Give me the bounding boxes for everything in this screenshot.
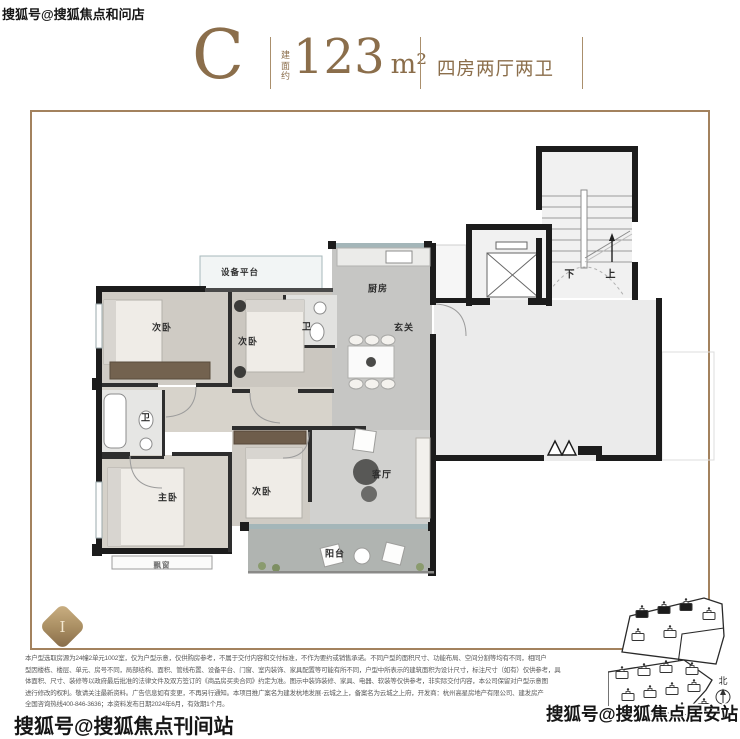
stairwell [542,152,632,298]
watermark-bottom-left: 搜狐号@搜狐焦点刊间站 [14,710,234,739]
floorplan-page: { "header": { "unit_letter": "C", "area_… [0,0,740,739]
watermark-bottom-right: 搜狐号@搜狐焦点居安站 [546,701,738,726]
north-label: 北 [718,676,727,686]
watermark-top-left: 搜狐号@搜狐焦点和问店 [2,4,145,23]
north-compass-icon: 北 [716,676,730,704]
